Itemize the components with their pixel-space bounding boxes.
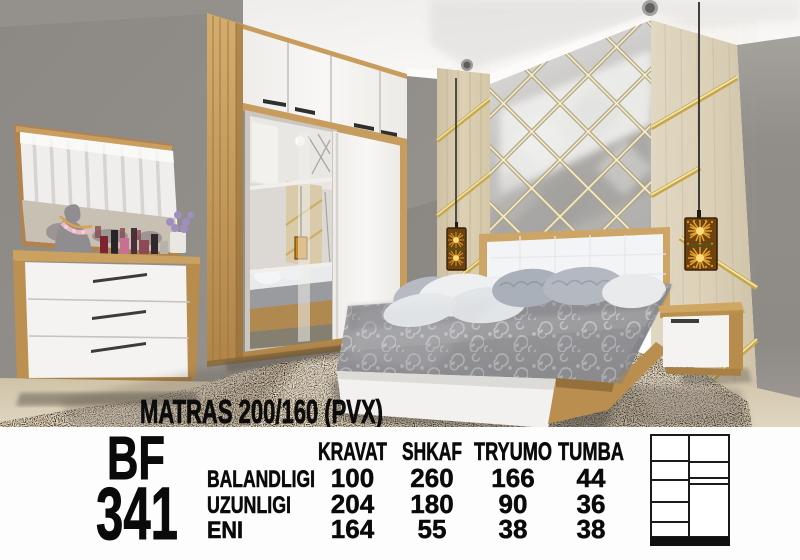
svg-text:164: 164	[331, 514, 375, 544]
svg-text:BALANDLIGI: BALANDLIGI	[207, 466, 315, 493]
svg-text:TRYUMO: TRYUMO	[474, 438, 552, 466]
svg-text:KRAVAT: KRAVAT	[318, 438, 387, 466]
svg-text:TUMBA: TUMBA	[558, 438, 624, 466]
svg-text:55: 55	[418, 514, 447, 544]
svg-text:SHKAF: SHKAF	[402, 438, 462, 466]
svg-text:38: 38	[577, 514, 606, 544]
svg-text:38: 38	[499, 514, 528, 544]
svg-text:ENI: ENI	[207, 517, 243, 544]
svg-text:341: 341	[96, 472, 178, 555]
svg-text:UZUNLIGI: UZUNLIGI	[207, 492, 291, 519]
svg-text:MATRAS 200/160 (PVX): MATRAS 200/160 (PVX)	[140, 393, 383, 430]
